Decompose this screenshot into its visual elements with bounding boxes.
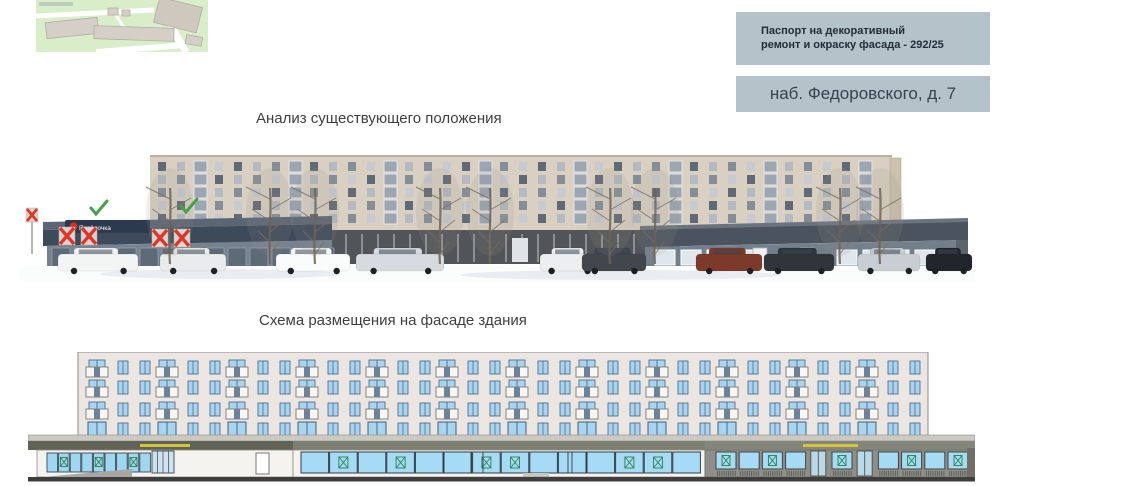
rejection-x-mark-small — [26, 208, 38, 254]
canopy-sign-text-left — [140, 444, 190, 447]
passport-title-line2: ремонт и окраску фасада - 292/25 — [761, 39, 990, 53]
analysis-section-title: Анализ существующего положения — [256, 110, 502, 127]
passport-title-box: Паспорт на декоративный ремонт и окраску… — [736, 12, 990, 65]
facade-photo: Пятёрочка — [20, 150, 975, 281]
passport-title-line1: Паспорт на декоративный — [761, 25, 990, 39]
approval-check-mark — [91, 201, 107, 214]
map-street-label — [39, 2, 73, 6]
canopy-sign-text-right — [803, 444, 858, 447]
ground-line — [28, 477, 975, 482]
rejection-x-mark — [174, 229, 190, 247]
passport-page: Паспорт на декоративный ремонт и окраску… — [0, 0, 1127, 486]
rejection-x-mark — [81, 227, 97, 245]
site-map — [36, 0, 208, 52]
rejection-x-mark — [152, 229, 168, 247]
rejection-x-mark — [59, 227, 75, 245]
store-sign: Пятёрочка — [65, 220, 150, 233]
scheme-section-title: Схема размещения на фасаде здания — [259, 312, 527, 329]
facade-scheme-drawing — [28, 352, 975, 482]
address-box: наб. Федоровского, д. 7 — [736, 76, 990, 112]
